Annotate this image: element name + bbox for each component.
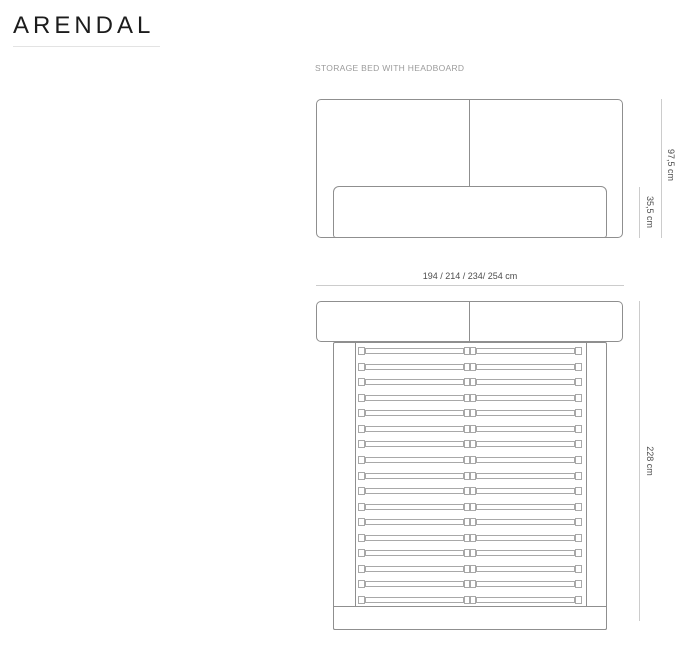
slat-holder: [358, 503, 365, 511]
slat-holder: [358, 565, 365, 573]
diagram-label: STORAGE BED WITH HEADBOARD: [315, 63, 464, 73]
slat-row: [358, 503, 582, 511]
slat-board: [476, 473, 575, 479]
slat-row: [358, 456, 582, 464]
slat-holder: [358, 518, 365, 526]
slat-board: [476, 550, 575, 556]
top-headboard-split-line: [469, 301, 471, 342]
slat-board: [476, 441, 575, 447]
dim-total-height-line: [661, 99, 662, 238]
slat-holder: [358, 596, 365, 604]
slat-holder: [358, 409, 365, 417]
page-title: ARENDAL: [13, 12, 154, 40]
slat-board: [365, 581, 464, 587]
slat-holder: [575, 456, 582, 464]
slat-holder: [575, 472, 582, 480]
slat-row: [358, 472, 582, 480]
slat-holder: [358, 378, 365, 386]
slat-row: [358, 534, 582, 542]
slat-board: [365, 457, 464, 463]
slat-board: [476, 348, 575, 354]
slat-board: [365, 379, 464, 385]
dim-base-height-line: [639, 187, 640, 238]
dim-length-line: [639, 301, 640, 621]
slat-board: [476, 535, 575, 541]
slat-board: [476, 426, 575, 432]
front-bed-base: [333, 186, 607, 238]
slat-board: [365, 519, 464, 525]
slat-board: [365, 364, 464, 370]
slat-holder: [358, 549, 365, 557]
slats-container: [358, 347, 582, 604]
slat-holder: [575, 394, 582, 402]
top-footboard: [333, 606, 607, 630]
slat-holder: [358, 487, 365, 495]
slat-holder: [358, 456, 365, 464]
slat-board: [476, 504, 575, 510]
slat-holder: [575, 409, 582, 417]
slat-row: [358, 378, 582, 386]
slat-holder: [575, 549, 582, 557]
slat-board: [476, 395, 575, 401]
slat-holder: [575, 425, 582, 433]
slat-board: [365, 395, 464, 401]
slat-holder: [575, 347, 582, 355]
slat-holder: [575, 565, 582, 573]
slat-board: [476, 379, 575, 385]
slat-row: [358, 487, 582, 495]
slat-row: [358, 425, 582, 433]
slat-holder: [575, 534, 582, 542]
slat-board: [365, 473, 464, 479]
slat-board: [476, 410, 575, 416]
slat-row: [358, 394, 582, 402]
dim-width-line: [316, 285, 624, 286]
slat-board: [476, 597, 575, 603]
slat-holder: [358, 580, 365, 588]
slat-holder: [575, 596, 582, 604]
slat-row: [358, 565, 582, 573]
top-left-rail-line: [355, 342, 356, 607]
slat-row: [358, 347, 582, 355]
diagram-canvas: ARENDAL STORAGE BED WITH HEADBOARD 97,5 …: [0, 0, 690, 650]
slat-board: [476, 581, 575, 587]
slat-holder: [575, 503, 582, 511]
slat-board: [365, 597, 464, 603]
dim-length-label: 228 cm: [645, 446, 655, 476]
slat-holder: [575, 580, 582, 588]
slat-board: [365, 348, 464, 354]
slat-holder: [358, 394, 365, 402]
slat-holder: [358, 440, 365, 448]
slat-holder: [358, 425, 365, 433]
slat-holder: [575, 487, 582, 495]
slat-holder: [358, 472, 365, 480]
slat-row: [358, 440, 582, 448]
front-headboard-split-line: [469, 99, 471, 188]
slat-board: [476, 364, 575, 370]
slat-row: [358, 518, 582, 526]
slat-board: [365, 426, 464, 432]
slat-board: [476, 566, 575, 572]
slat-holder: [358, 534, 365, 542]
slat-board: [365, 441, 464, 447]
slat-holder: [575, 518, 582, 526]
slat-board: [476, 488, 575, 494]
slat-row: [358, 596, 582, 604]
slat-holder: [575, 363, 582, 371]
slat-row: [358, 409, 582, 417]
slat-holder: [575, 378, 582, 386]
dim-total-height-label: 97,5 cm: [666, 149, 676, 181]
slat-holder: [575, 440, 582, 448]
slat-board: [476, 457, 575, 463]
slat-holder: [358, 347, 365, 355]
slat-board: [365, 550, 464, 556]
slat-board: [365, 410, 464, 416]
slat-row: [358, 549, 582, 557]
slat-row: [358, 363, 582, 371]
slat-board: [365, 535, 464, 541]
title-underline: [13, 46, 160, 47]
slat-board: [365, 488, 464, 494]
slat-row: [358, 580, 582, 588]
slat-board: [365, 504, 464, 510]
dim-base-height-label: 35,5 cm: [645, 196, 655, 228]
slat-board: [476, 519, 575, 525]
top-right-rail-line: [586, 342, 587, 607]
slat-board: [365, 566, 464, 572]
slat-holder: [358, 363, 365, 371]
dim-width-label: 194 / 214 / 234/ 254 cm: [423, 271, 518, 281]
